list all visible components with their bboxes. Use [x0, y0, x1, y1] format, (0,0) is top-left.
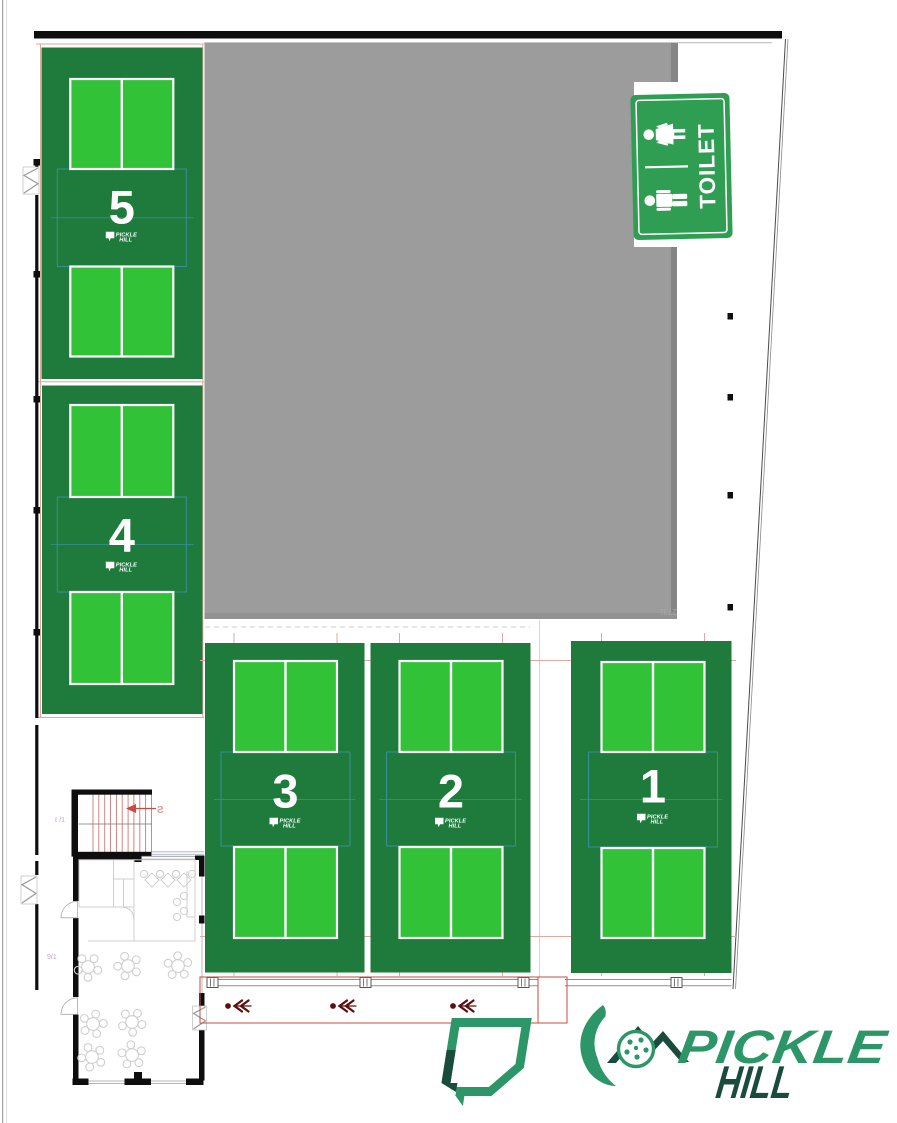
svg-text:TOILET: TOILET: [694, 123, 721, 209]
svg-text:9/1: 9/1: [47, 954, 57, 961]
svg-text:1: 1: [640, 760, 666, 813]
svg-text:HILL: HILL: [283, 824, 296, 830]
svg-text:4: 4: [109, 509, 135, 562]
svg-text:HILL: HILL: [651, 820, 664, 826]
svg-text:3: 3: [272, 765, 298, 818]
svg-text:Ƨ: Ƨ: [157, 805, 164, 816]
svg-text:HILL: HILL: [713, 1056, 796, 1108]
svg-text:5: 5: [109, 181, 135, 234]
svg-text:2731: 2731: [659, 607, 677, 616]
svg-text:HILL: HILL: [449, 824, 462, 830]
svg-text:ℓ /1: ℓ /1: [54, 817, 65, 824]
svg-text:HILL: HILL: [119, 238, 132, 244]
svg-text:HILL: HILL: [119, 568, 132, 574]
svg-text:2: 2: [438, 765, 464, 818]
